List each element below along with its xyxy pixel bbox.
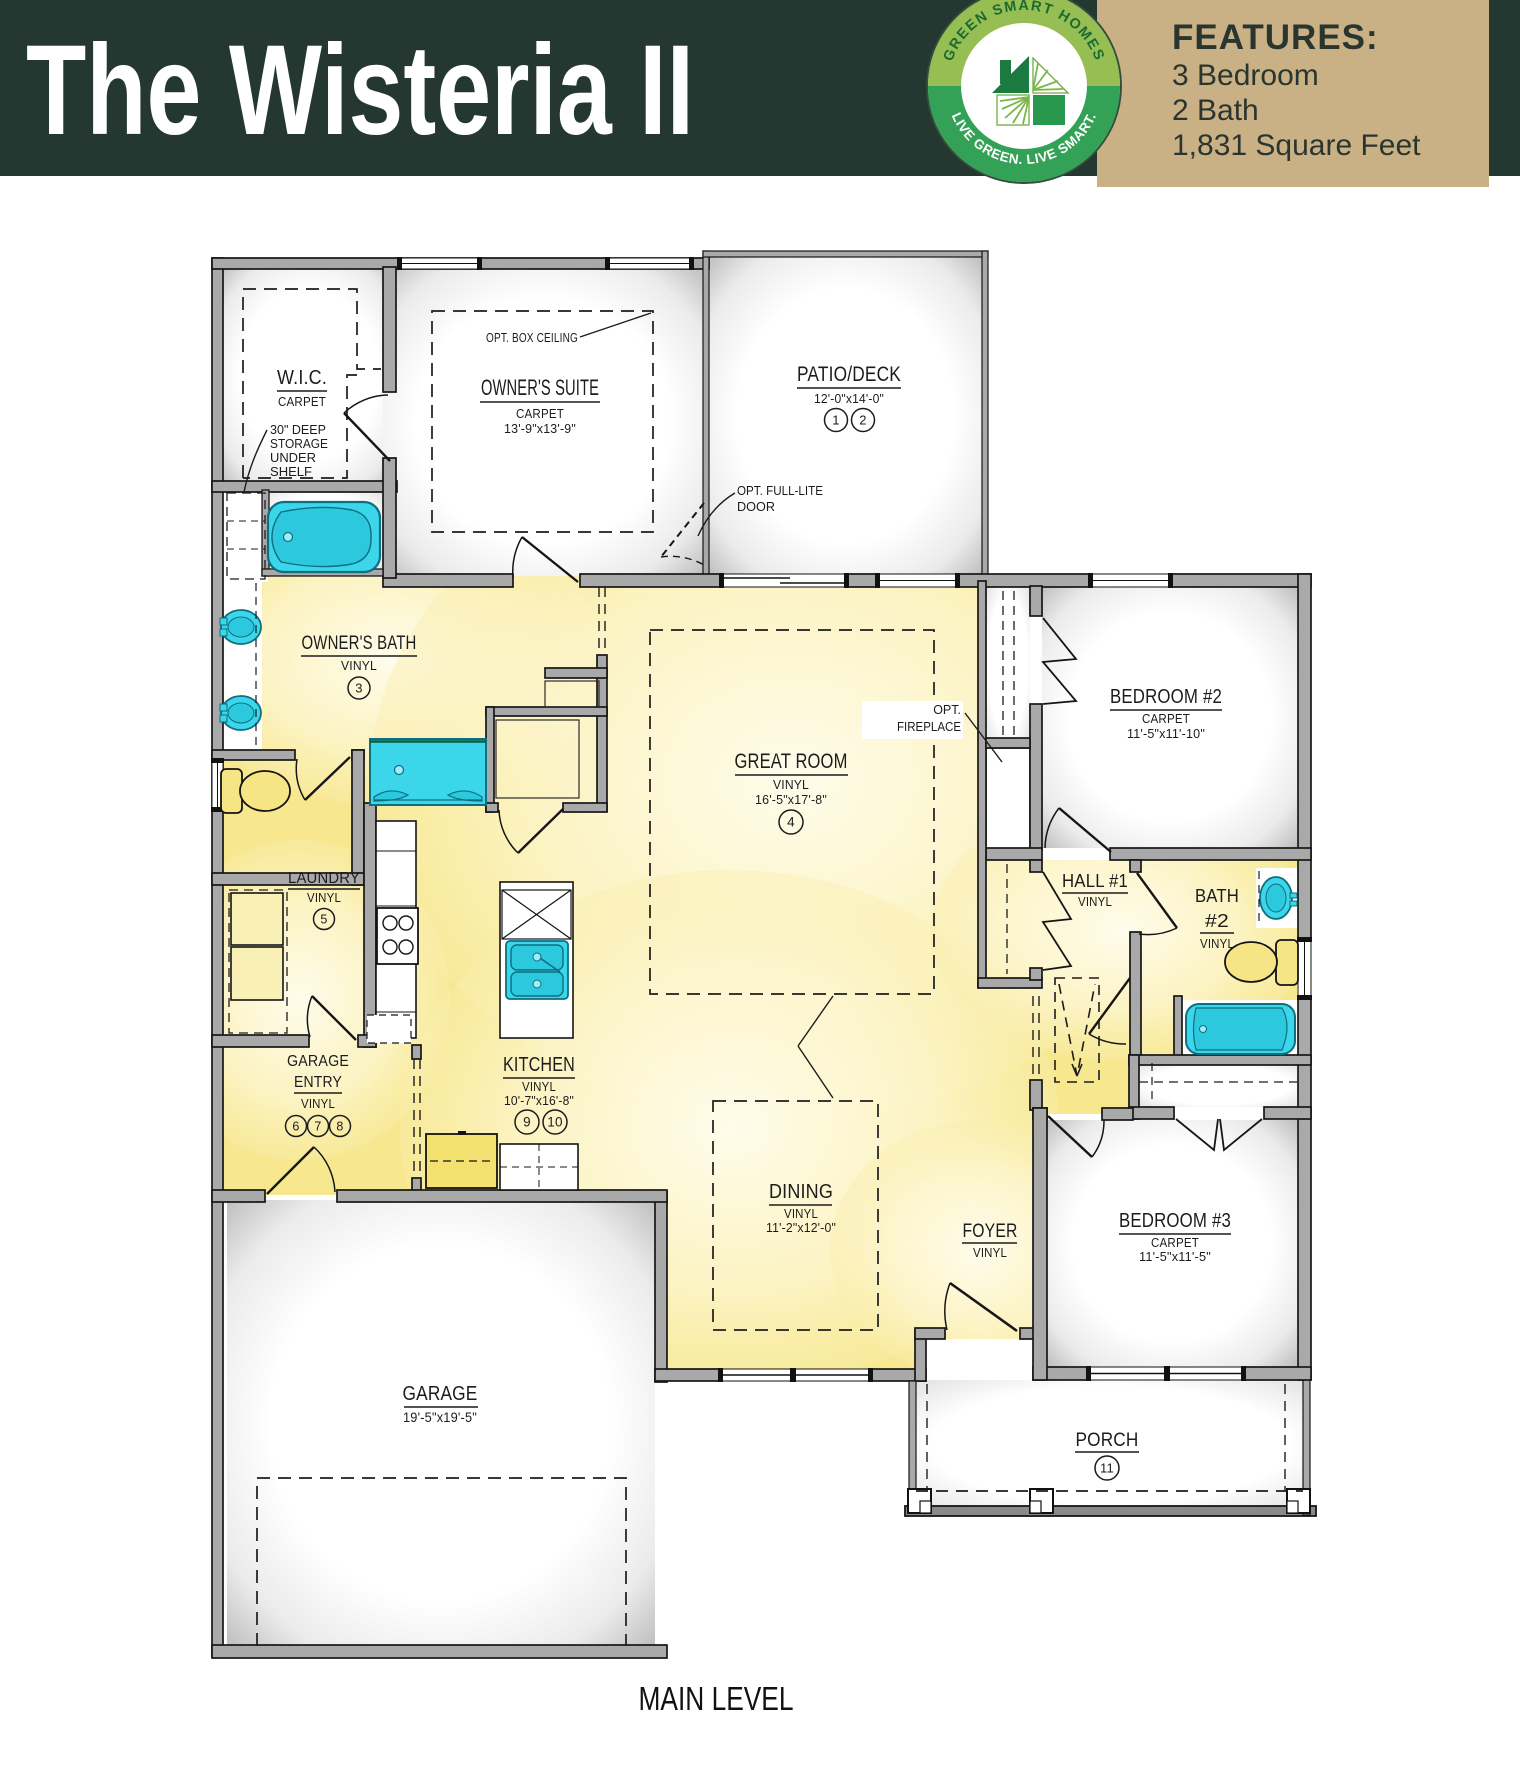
svg-text:BEDROOM #2: BEDROOM #2 bbox=[1110, 685, 1222, 708]
svg-text:VINYL: VINYL bbox=[522, 1080, 556, 1094]
svg-text:10'-7"x16'-8": 10'-7"x16'-8" bbox=[504, 1093, 574, 1108]
svg-text:OWNER'S SUITE: OWNER'S SUITE bbox=[481, 375, 599, 400]
svg-text:11'-5"x11'-10": 11'-5"x11'-10" bbox=[1127, 726, 1205, 741]
svg-text:30" DEEP: 30" DEEP bbox=[270, 423, 326, 437]
svg-text:KITCHEN: KITCHEN bbox=[503, 1054, 575, 1076]
svg-text:FOYER: FOYER bbox=[963, 1221, 1018, 1242]
svg-text:11'-5"x11'-5": 11'-5"x11'-5" bbox=[1139, 1249, 1211, 1264]
svg-text:OPT.: OPT. bbox=[933, 703, 961, 717]
svg-text:MAIN LEVEL: MAIN LEVEL bbox=[639, 1680, 794, 1717]
svg-text:11: 11 bbox=[1100, 1461, 1114, 1476]
svg-text:VINYL: VINYL bbox=[1200, 937, 1234, 951]
svg-text:OPT. BOX CEILING: OPT. BOX CEILING bbox=[486, 331, 578, 345]
svg-text:HALL #1: HALL #1 bbox=[1062, 871, 1128, 891]
svg-text:4: 4 bbox=[787, 815, 795, 830]
svg-text:VINYL: VINYL bbox=[301, 1097, 335, 1111]
svg-text:VINYL: VINYL bbox=[1078, 895, 1112, 909]
svg-text:STORAGE: STORAGE bbox=[270, 437, 328, 451]
svg-text:LAUNDRY: LAUNDRY bbox=[288, 870, 360, 887]
svg-text:1: 1 bbox=[832, 413, 839, 428]
svg-text:OWNER'S BATH: OWNER'S BATH bbox=[302, 633, 417, 654]
svg-text:5: 5 bbox=[320, 912, 327, 926]
svg-text:UNDER: UNDER bbox=[270, 451, 316, 465]
svg-text:PORCH: PORCH bbox=[1076, 1430, 1139, 1451]
svg-text:W.I.C.: W.I.C. bbox=[277, 367, 327, 389]
svg-text:VINYL: VINYL bbox=[784, 1207, 818, 1221]
svg-text:VINYL: VINYL bbox=[341, 658, 377, 673]
svg-text:1,831 Square Feet: 1,831 Square Feet bbox=[1172, 129, 1421, 162]
svg-text:CARPET: CARPET bbox=[1151, 1235, 1199, 1250]
svg-text:BEDROOM #3: BEDROOM #3 bbox=[1119, 1209, 1231, 1232]
svg-text:VINYL: VINYL bbox=[973, 1246, 1007, 1260]
svg-text:OPT. FULL-LITE: OPT. FULL-LITE bbox=[737, 484, 823, 498]
svg-text:VINYL: VINYL bbox=[773, 777, 809, 792]
svg-text:VINYL: VINYL bbox=[307, 891, 341, 905]
svg-text:CARPET: CARPET bbox=[516, 406, 564, 421]
svg-text:2: 2 bbox=[859, 413, 866, 428]
svg-text:12'-0"x14'-0": 12'-0"x14'-0" bbox=[814, 391, 884, 406]
svg-text:DOOR: DOOR bbox=[737, 500, 775, 514]
svg-text:8: 8 bbox=[336, 1119, 343, 1133]
svg-text:PATIO/DECK: PATIO/DECK bbox=[797, 363, 901, 386]
svg-text:3 Bedroom: 3 Bedroom bbox=[1172, 59, 1319, 92]
svg-text:GARAGE: GARAGE bbox=[403, 1383, 478, 1405]
svg-text:7: 7 bbox=[314, 1119, 321, 1133]
svg-text:CARPET: CARPET bbox=[278, 394, 326, 409]
svg-text:ENTRY: ENTRY bbox=[294, 1074, 342, 1091]
svg-text:FIREPLACE: FIREPLACE bbox=[897, 720, 961, 734]
svg-text:2 Bath: 2 Bath bbox=[1172, 94, 1259, 127]
svg-text:3: 3 bbox=[355, 681, 362, 696]
svg-text:11'-2"x12'-0": 11'-2"x12'-0" bbox=[766, 1220, 836, 1235]
svg-text:BATH: BATH bbox=[1195, 886, 1239, 906]
svg-text:DINING: DINING bbox=[769, 1181, 833, 1203]
svg-text:13'-9"x13'-9": 13'-9"x13'-9" bbox=[504, 421, 576, 436]
svg-text:GREAT ROOM: GREAT ROOM bbox=[735, 749, 848, 773]
svg-text:CARPET: CARPET bbox=[1142, 711, 1190, 726]
svg-text:GARAGE: GARAGE bbox=[287, 1053, 349, 1070]
svg-text:16'-5"x17'-8": 16'-5"x17'-8" bbox=[755, 792, 827, 807]
svg-text:FEATURES:: FEATURES: bbox=[1172, 18, 1379, 57]
svg-text:SHELF: SHELF bbox=[270, 465, 312, 479]
svg-text:9: 9 bbox=[523, 1115, 531, 1130]
svg-text:#2: #2 bbox=[1205, 911, 1229, 931]
svg-text:10: 10 bbox=[547, 1115, 562, 1130]
svg-text:6: 6 bbox=[292, 1119, 299, 1133]
svg-text:The Wisteria II: The Wisteria II bbox=[26, 19, 694, 162]
svg-text:19'-5"x19'-5": 19'-5"x19'-5" bbox=[403, 1410, 477, 1425]
